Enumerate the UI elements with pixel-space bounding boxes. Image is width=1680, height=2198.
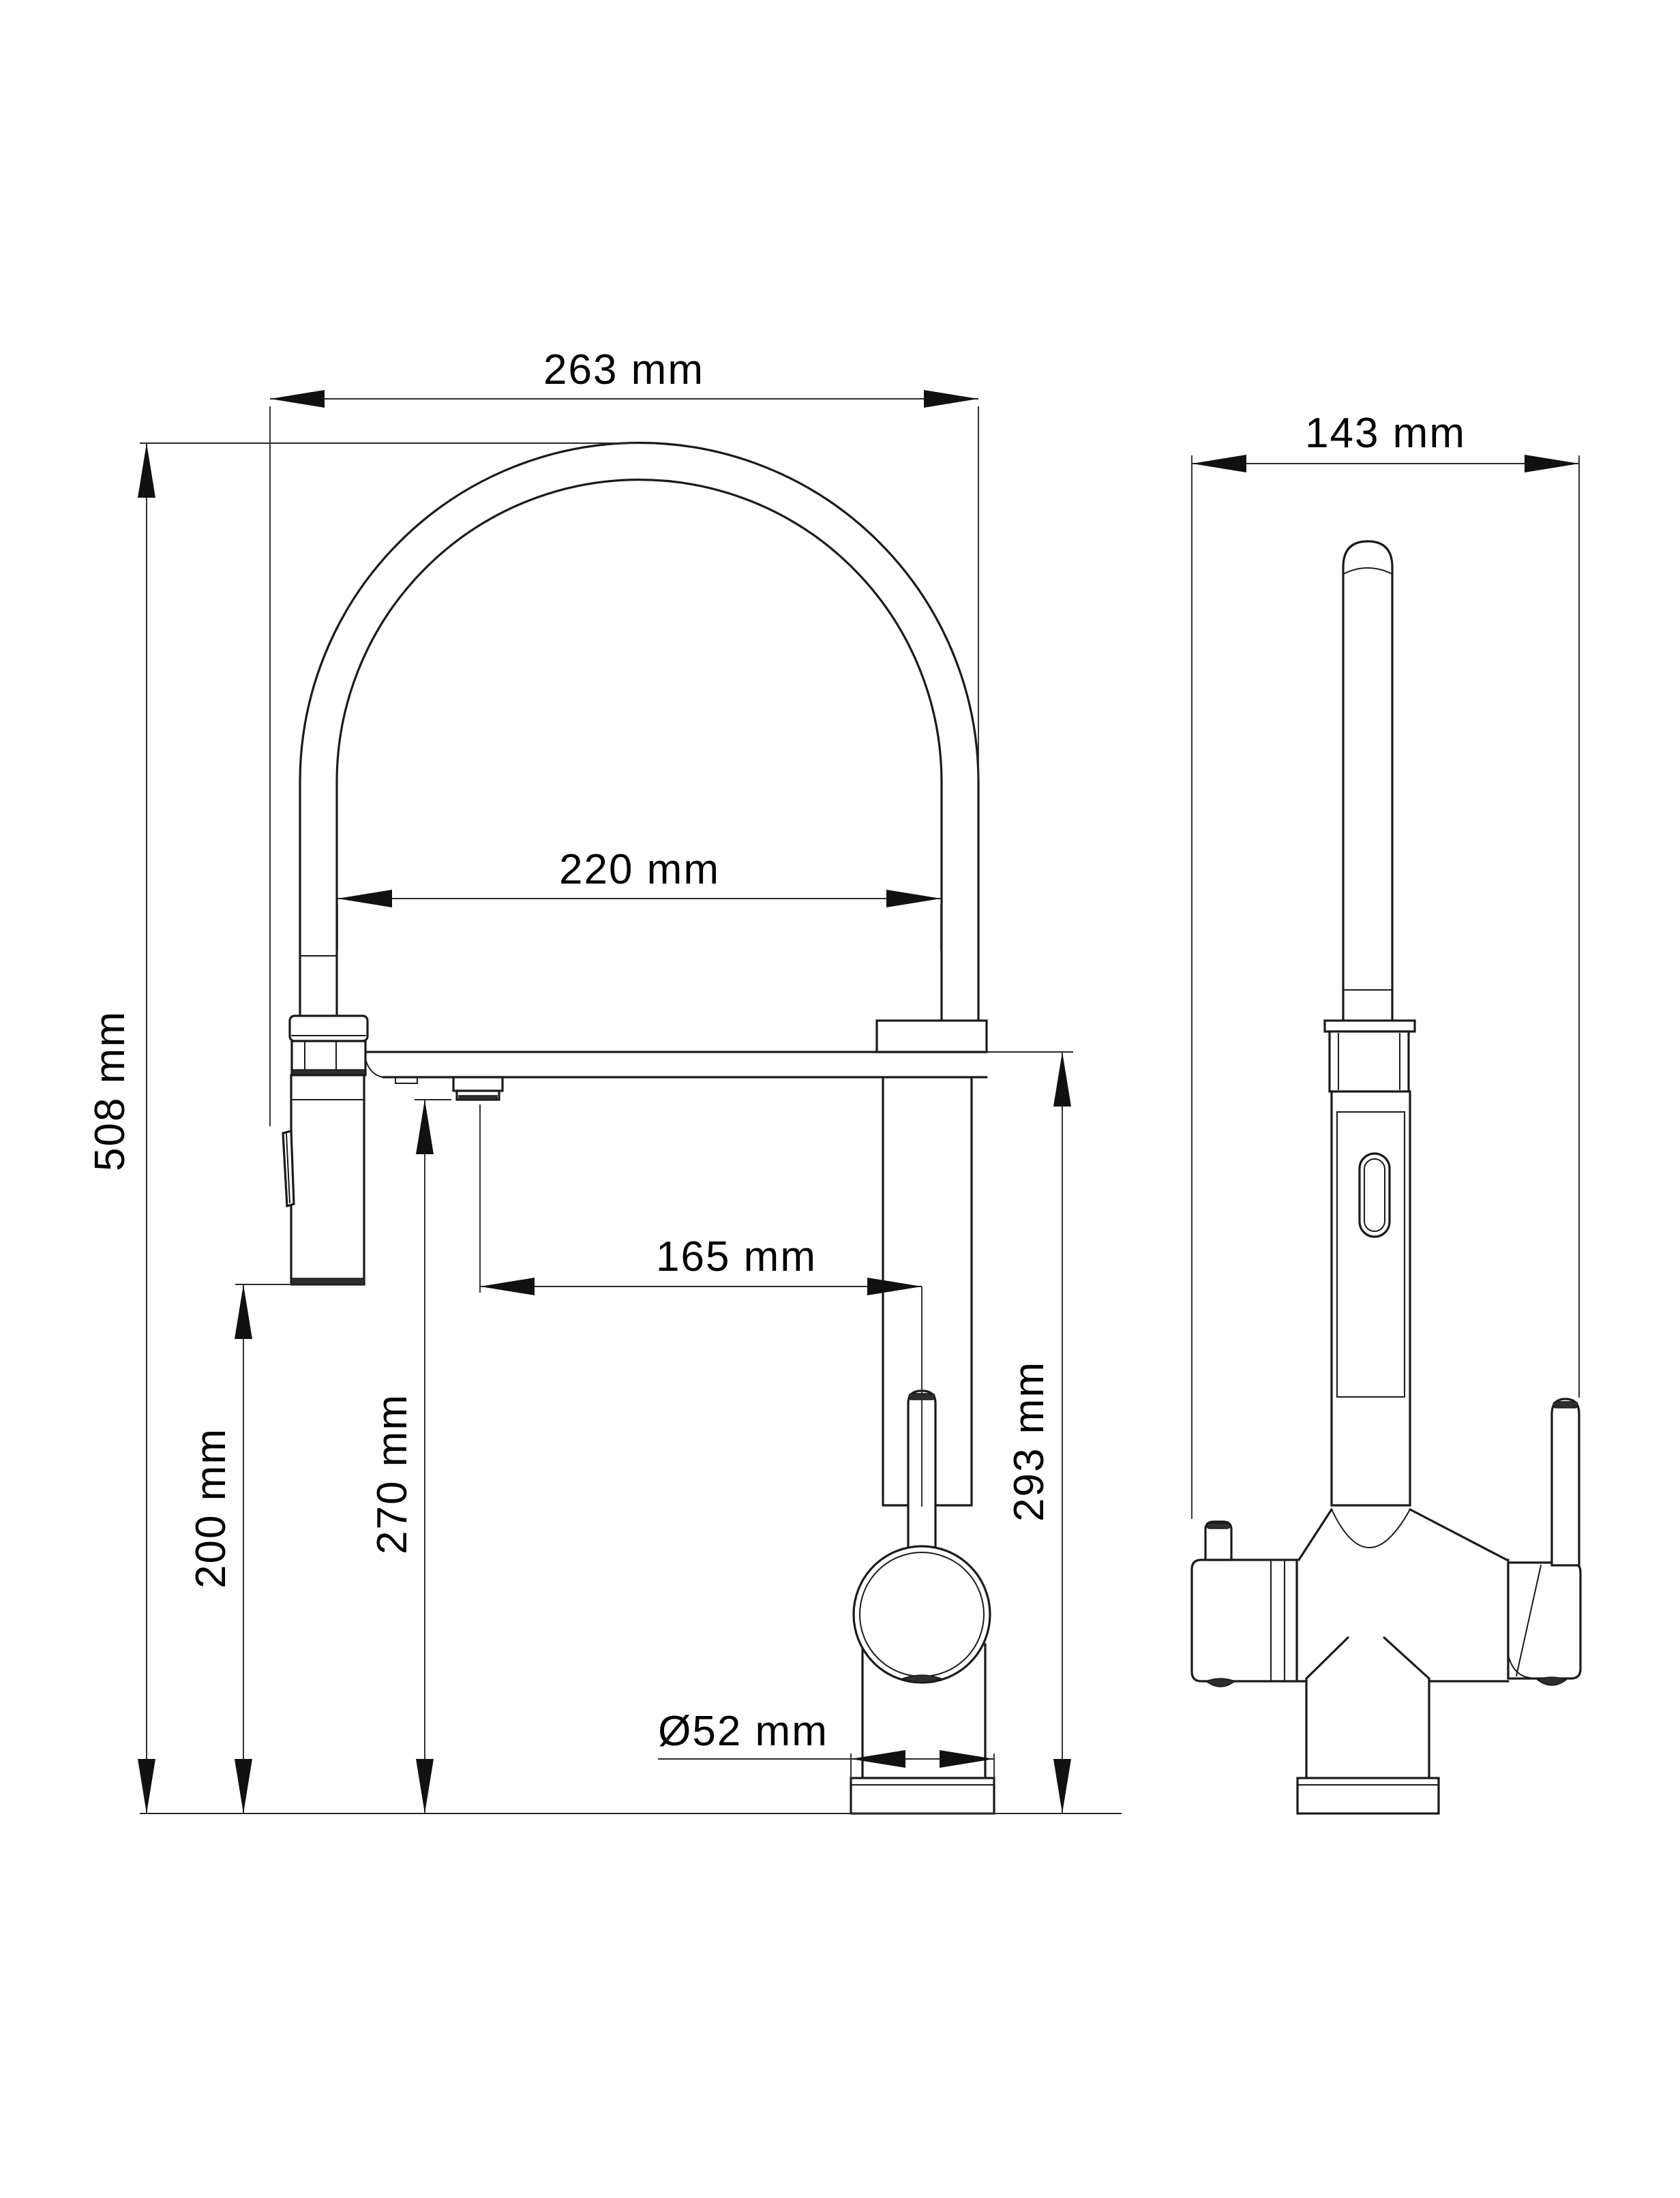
arrow-down — [138, 1759, 155, 1813]
spray-head-bottom-band — [291, 1278, 364, 1284]
arrow-down — [235, 1759, 252, 1813]
side-left-screw — [1206, 1678, 1235, 1687]
aerator-upper — [453, 1077, 502, 1091]
dim-label-508: 508 mm — [87, 1010, 134, 1171]
side-waist-right — [1384, 1638, 1429, 1678]
dim-label-200: 200 mm — [187, 1428, 235, 1589]
dim-overall-width-front: 263 mm — [270, 346, 978, 1126]
handle-ball-outer — [854, 1546, 990, 1683]
side-base-plate — [1297, 1778, 1439, 1813]
arrow-right — [924, 390, 978, 408]
side-neck-curve — [1332, 1509, 1410, 1548]
arrow-right — [1525, 455, 1579, 472]
arrow-left — [480, 1278, 535, 1295]
dim-label-293: 293 mm — [1006, 1361, 1053, 1522]
side-shoulder-left — [1299, 1509, 1332, 1560]
arrow-left — [270, 390, 325, 408]
front-view — [283, 443, 994, 1814]
arrow-right — [867, 1278, 922, 1295]
spout-arm-fillet — [365, 1059, 383, 1077]
side-view — [1192, 541, 1580, 1813]
side-collar-flange — [1325, 1021, 1415, 1032]
dim-label-263: 263 mm — [543, 346, 704, 393]
dim-spout-height: 293 mm — [987, 1052, 1073, 1813]
hose-arc-outer — [300, 443, 978, 783]
side-collar-nut — [1330, 1032, 1409, 1092]
side-hose-cap-line — [1343, 568, 1392, 574]
side-waist-left — [1306, 1638, 1348, 1678]
arrow-down — [416, 1759, 434, 1813]
dim-hose-inner-width: 220 mm — [337, 846, 941, 951]
aerator-outlet-band — [459, 1096, 497, 1100]
spray-collar-nut — [290, 1016, 367, 1041]
side-lever-rod — [1552, 1399, 1579, 1565]
arrow-down — [1053, 1759, 1071, 1813]
dim-label-165: 165 mm — [656, 1233, 817, 1280]
side-shoulder-right — [1410, 1509, 1507, 1560]
dim-label-270: 270 mm — [369, 1394, 416, 1554]
spout-connector-block — [877, 1021, 987, 1052]
dim-label-220: 220 mm — [559, 846, 720, 893]
arrow-up — [416, 1100, 434, 1154]
faucet-technical-drawing: 263 mm 220 mm 508 mm 200 mm — [0, 0, 1680, 2198]
front-base-plate — [851, 1778, 994, 1813]
arrow-up — [138, 443, 155, 498]
arrow-up — [235, 1284, 252, 1339]
hose-arc-inner — [337, 480, 942, 782]
arrow-up — [1053, 1052, 1071, 1106]
dim-spray-head-clearance: 200 mm — [187, 1284, 290, 1813]
side-left-block — [1192, 1560, 1297, 1681]
side-hose-rod — [1343, 541, 1392, 1021]
spray-head-body — [291, 1075, 364, 1284]
dim-label-52: Ø52 mm — [658, 1708, 828, 1755]
drawing-sheet: 263 mm 220 mm 508 mm 200 mm — [0, 0, 1680, 2198]
side-lever-cap — [1553, 1402, 1578, 1408]
arrow-right — [886, 890, 941, 907]
arrow-left — [337, 890, 392, 907]
side-right-screw — [1537, 1677, 1566, 1685]
dim-spout-reach: 165 mm — [480, 1104, 922, 1507]
dim-outlet-height: 270 mm — [369, 1100, 451, 1813]
side-left-knob-cap — [1207, 1523, 1230, 1529]
dim-label-143: 143 mm — [1305, 410, 1466, 457]
arrow-left — [1192, 455, 1246, 472]
